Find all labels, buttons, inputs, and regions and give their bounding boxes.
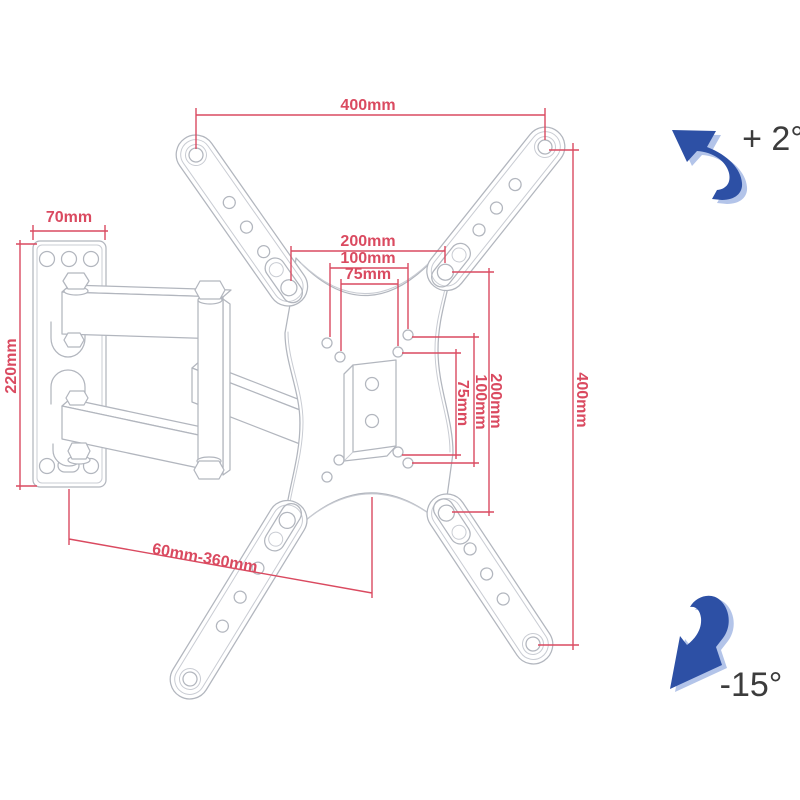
arm-bottom-left <box>163 493 314 706</box>
dim-label-right-height: 400mm <box>573 372 590 427</box>
dim-label-extension: 60mm-360mm <box>151 541 259 577</box>
dim-label-h75: 75mm <box>345 266 391 283</box>
elbow-bottom-bolt <box>194 461 224 479</box>
hinge-bolt-top <box>63 273 89 289</box>
arm-top-left <box>169 127 316 313</box>
center-mount-box <box>344 360 396 461</box>
rotate-up-arrow-icon <box>672 130 742 200</box>
dim-label-h200: 200mm <box>340 233 395 250</box>
arm-top-right <box>419 119 573 298</box>
elbow-link <box>198 296 223 472</box>
arm-bottom-right <box>420 486 561 671</box>
tilt-down-indicator: -15° <box>670 596 782 704</box>
hinge-bolt-bottom <box>68 443 90 459</box>
diagram-canvas: 400mm 400mm 200mm 100mm 75mm 75mm 100mm … <box>0 0 800 800</box>
dim-top-width: 400mm <box>196 97 545 149</box>
tilt-up-angle-label: + 2° <box>742 120 800 158</box>
dim-label-plate-height: 220mm <box>3 338 20 393</box>
dim-label-plate-width: 70mm <box>46 209 92 226</box>
tilt-down-angle-label: -15° <box>720 666 783 704</box>
dim-wall-plate-width: 70mm <box>30 209 108 240</box>
dim-label-h100: 100mm <box>340 250 395 267</box>
dim-label-v200: 200mm <box>487 373 504 428</box>
dim-wall-plate-height: 220mm <box>3 240 37 490</box>
wall-mount-dimension-diagram: 400mm 400mm 200mm 100mm 75mm 75mm 100mm … <box>0 0 800 800</box>
tilt-up-indicator: + 2° <box>672 120 800 204</box>
dim-right-height: 400mm <box>538 143 590 650</box>
dim-label-v100: 100mm <box>472 374 489 429</box>
dim-label-v75: 75mm <box>454 380 471 426</box>
dim-label-top-width: 400mm <box>340 97 395 114</box>
elbow-top-bolt <box>195 281 225 299</box>
